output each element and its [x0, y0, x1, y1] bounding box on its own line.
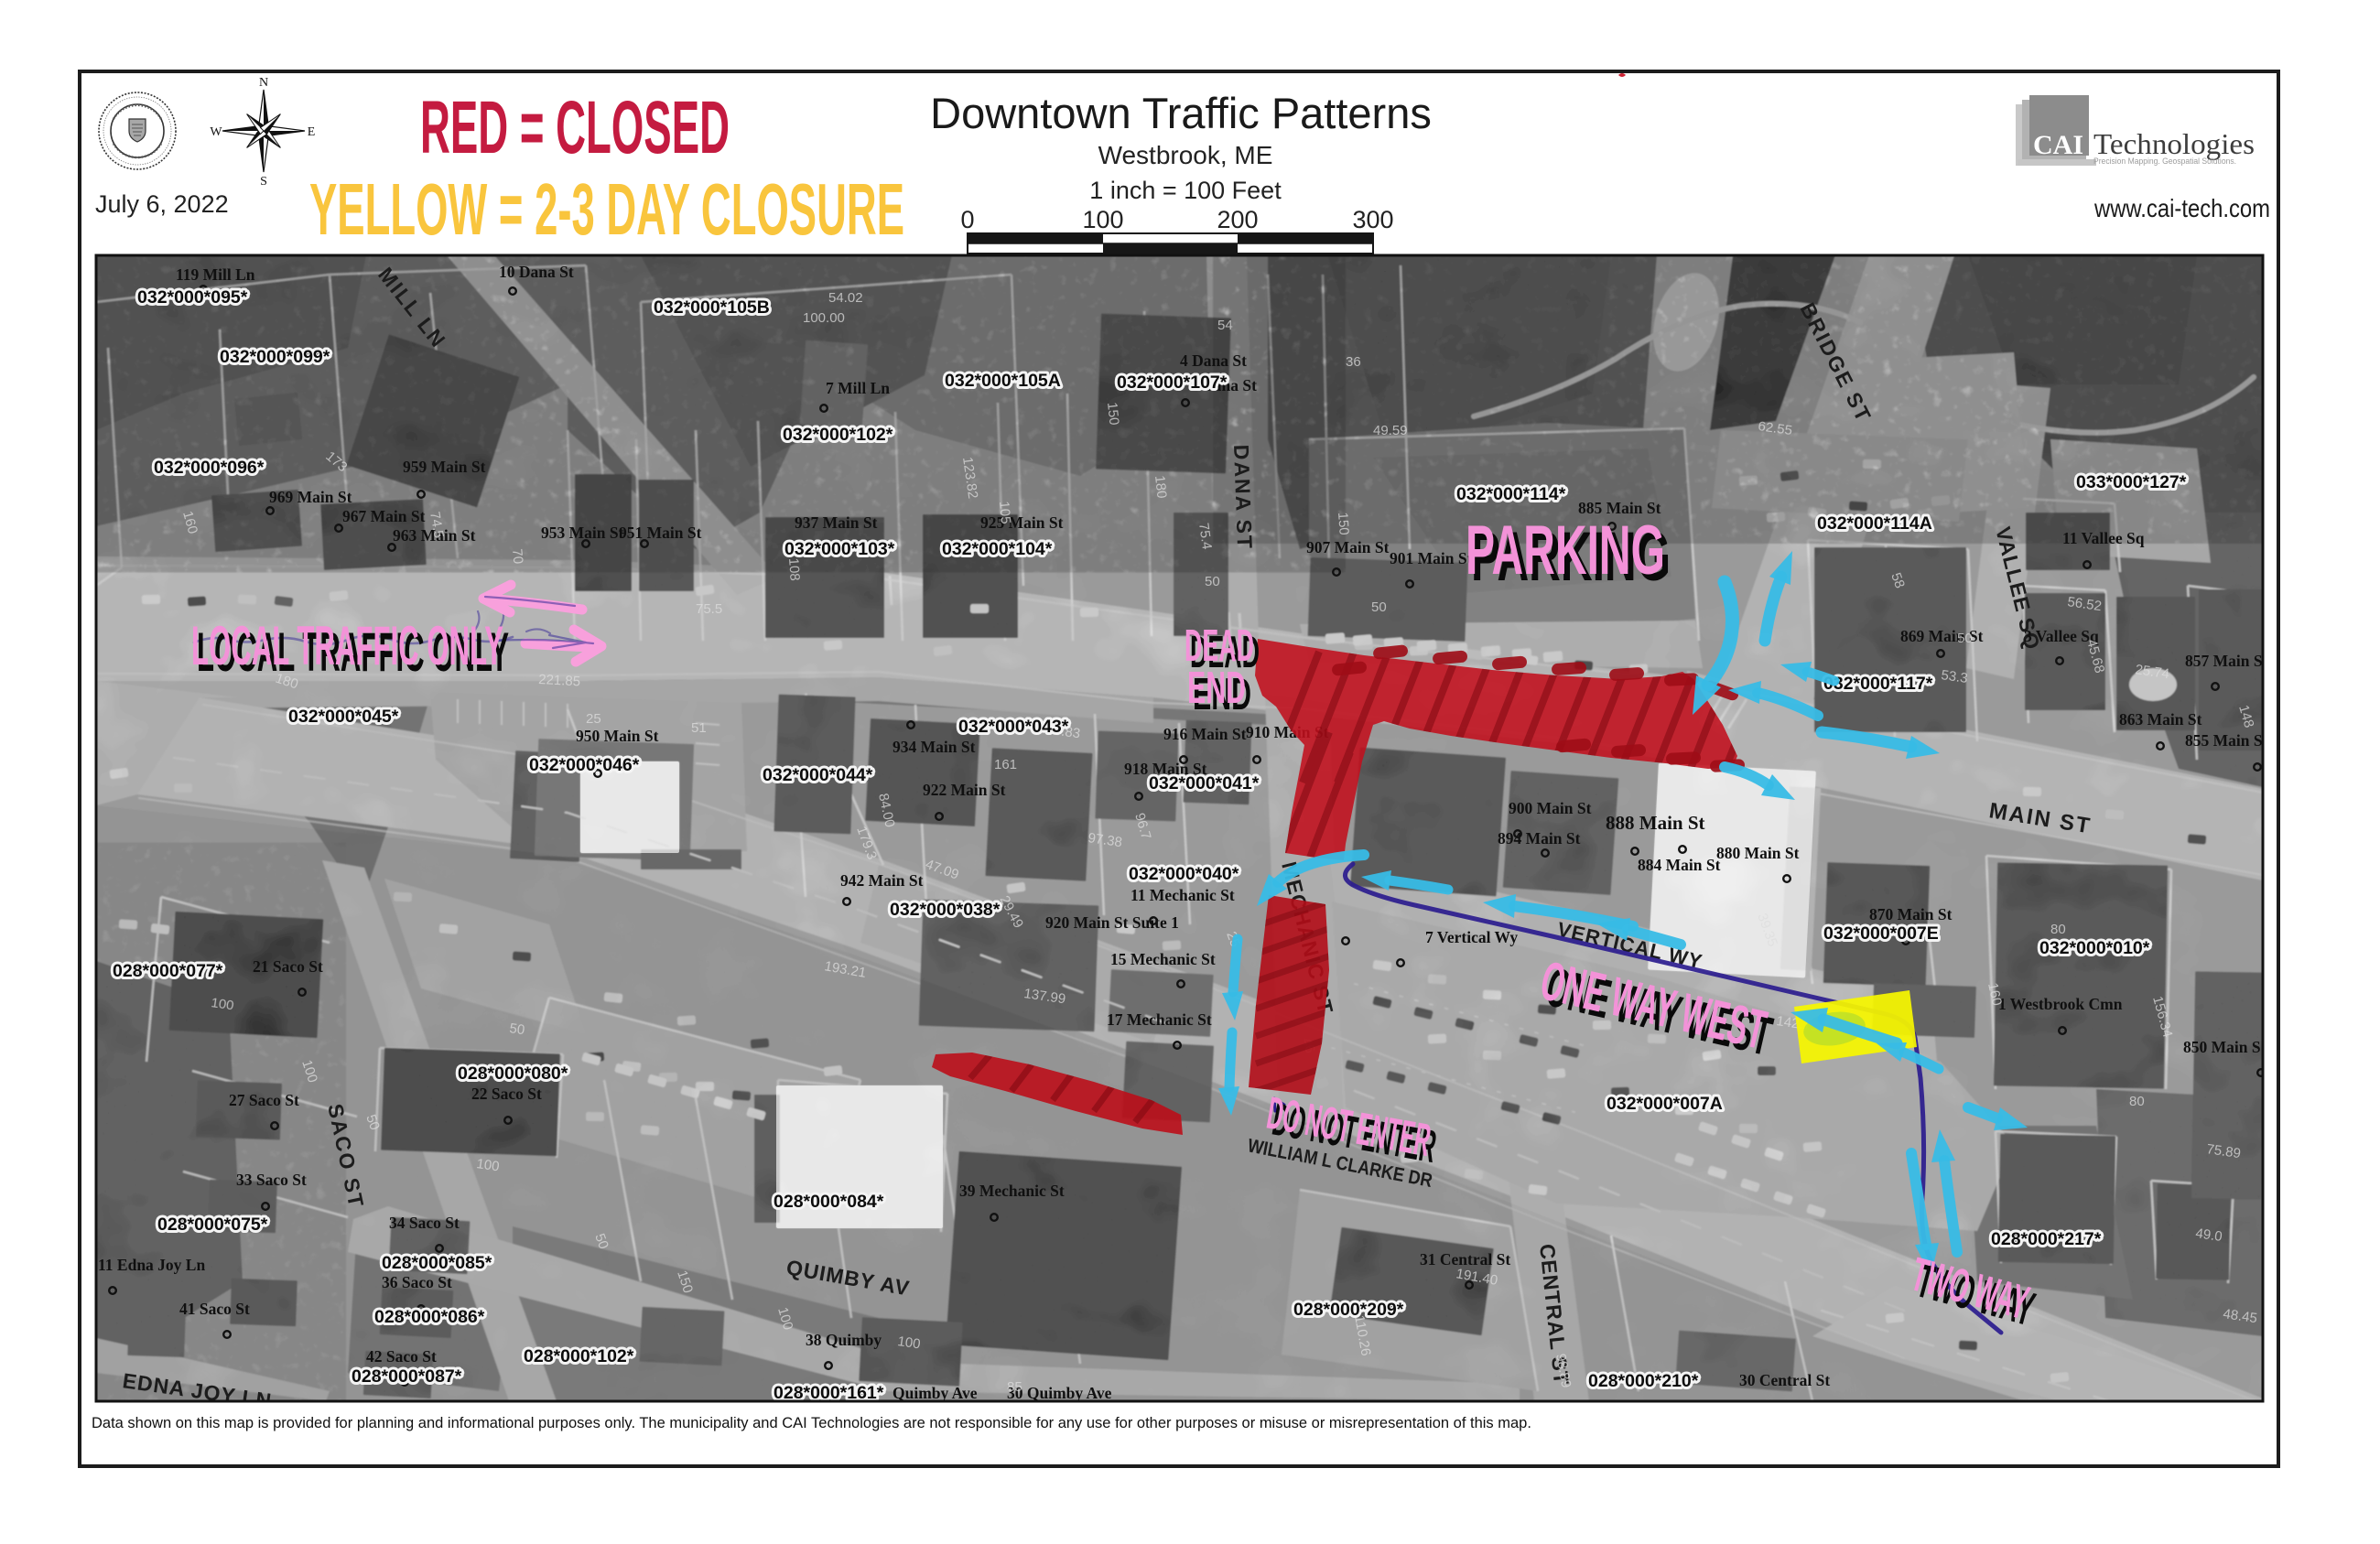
svg-text:4 Dana St: 4 Dana St — [1180, 351, 1247, 370]
svg-text:922 Main St: 922 Main St — [923, 781, 1006, 799]
svg-text:DANA ST: DANA ST — [1229, 444, 1257, 550]
svg-text:30 Central St: 30 Central St — [1739, 1371, 1830, 1389]
svg-text:80: 80 — [2050, 922, 2066, 937]
svg-text:100: 100 — [1082, 206, 1123, 233]
svg-text:27 Saco St: 27 Saco St — [229, 1091, 299, 1109]
svg-text:850 Main S: 850 Main S — [2183, 1038, 2261, 1056]
svg-text:032*000*038*: 032*000*038* — [890, 900, 1001, 920]
svg-text:CAI: CAI — [2033, 130, 2083, 160]
svg-text:032*000*114*: 032*000*114* — [1456, 484, 1566, 504]
svg-text:100.00: 100.00 — [803, 310, 845, 326]
svg-text:032*000*105A: 032*000*105A — [945, 371, 1061, 391]
svg-text:934 Main St: 934 Main St — [892, 738, 976, 756]
svg-text:028*000*102*: 028*000*102* — [524, 1346, 634, 1366]
svg-text:W: W — [210, 125, 222, 139]
svg-text:032*000*117*: 032*000*117* — [1823, 674, 1933, 694]
svg-text:51: 51 — [691, 720, 707, 736]
svg-text:916 Main St: 916 Main St — [1163, 725, 1247, 743]
svg-text:032*000*007E: 032*000*007E — [1823, 923, 1939, 944]
svg-text:863 Main St: 863 Main St — [2119, 710, 2202, 729]
svg-text:951 Main St: 951 Main St — [619, 524, 702, 542]
svg-text:161: 161 — [994, 757, 1017, 772]
svg-text:032*000*045*: 032*000*045* — [288, 707, 399, 727]
svg-text:30 Quimby Ave: 30 Quimby Ave — [1007, 1384, 1112, 1402]
svg-text:028*000*087*: 028*000*087* — [352, 1366, 462, 1387]
svg-text:032*000*010*: 032*000*010* — [2039, 938, 2150, 958]
svg-text:221.85: 221.85 — [538, 672, 581, 689]
svg-text:10 Dana St: 10 Dana St — [499, 263, 574, 281]
svg-text:42 Saco St: 42 Saco St — [366, 1347, 437, 1366]
svg-text:1 inch = 100 Feet: 1 inch = 100 Feet — [1089, 177, 1282, 204]
svg-text:888 Main St: 888 Main St — [1606, 812, 1705, 834]
svg-text:028*000*075*: 028*000*075* — [157, 1215, 268, 1235]
svg-text:028*000*084*: 028*000*084* — [773, 1192, 884, 1212]
svg-text:54.02: 54.02 — [828, 290, 863, 306]
svg-text:028*000*210*: 028*000*210* — [1588, 1371, 1699, 1391]
svg-text:75.5: 75.5 — [696, 601, 722, 617]
svg-text:70: 70 — [509, 548, 525, 565]
svg-text:032*000*040*: 032*000*040* — [1129, 864, 1239, 884]
svg-text:34 Saco St: 34 Saco St — [389, 1214, 460, 1232]
svg-text:907 Main St: 907 Main St — [1306, 538, 1390, 556]
svg-text:50: 50 — [1205, 574, 1220, 589]
svg-text:937 Main St: 937 Main St — [795, 513, 878, 532]
svg-text:925 Main St: 925 Main St — [980, 513, 1064, 532]
svg-text:11 Mechanic St: 11 Mechanic St — [1130, 886, 1235, 904]
svg-text:25: 25 — [586, 711, 601, 727]
svg-text:S: S — [260, 175, 267, 189]
svg-text:032*000*096*: 032*000*096* — [154, 458, 265, 478]
svg-text:Precision Mapping. Geospatial: Precision Mapping. Geospatial Solutions. — [2093, 157, 2236, 166]
svg-text:11 Vallee Sq: 11 Vallee Sq — [2062, 529, 2145, 547]
svg-text:80: 80 — [2129, 1094, 2145, 1109]
svg-text:www.cai-tech.com: www.cai-tech.com — [2093, 194, 2270, 222]
svg-text:49.59: 49.59 — [1373, 423, 1408, 438]
svg-text:032*000*044*: 032*000*044* — [763, 765, 873, 785]
svg-text:PARKING: PARKING — [1466, 512, 1665, 589]
svg-text:31 Central St: 31 Central St — [1420, 1250, 1510, 1269]
svg-text:028*000*217*: 028*000*217* — [1991, 1229, 2102, 1249]
svg-text:108: 108 — [785, 557, 803, 581]
svg-text:032*000*103*: 032*000*103* — [784, 539, 895, 559]
svg-text:36 Saco St: 36 Saco St — [382, 1273, 452, 1291]
svg-text:119 Mill Ln: 119 Mill Ln — [176, 265, 255, 284]
svg-text:LOCAL TRAFFIC ONLY: LOCAL TRAFFIC ONLY — [191, 615, 503, 676]
svg-text:85: 85 — [1007, 1379, 1022, 1395]
svg-text:880 Main St: 880 Main St — [1716, 844, 1800, 862]
svg-text:N: N — [259, 76, 268, 90]
svg-text:150: 150 — [1104, 402, 1122, 426]
svg-text:032*000*104*: 032*000*104* — [942, 539, 1053, 559]
svg-text:300: 300 — [1352, 206, 1393, 233]
svg-text:032*000*105B: 032*000*105B — [654, 297, 770, 318]
svg-text:Downtown Traffic Patterns: Downtown Traffic Patterns — [930, 89, 1432, 137]
svg-text:200: 200 — [1217, 206, 1258, 233]
svg-text:028*000*080*: 028*000*080* — [458, 1064, 568, 1084]
svg-text:920 Main St Suite 1: 920 Main St Suite 1 — [1045, 913, 1179, 932]
svg-text:870 Main St: 870 Main St — [1869, 905, 1953, 923]
svg-text:Technologies: Technologies — [2093, 127, 2255, 160]
svg-text:900 Main St: 900 Main St — [1509, 799, 1592, 817]
svg-text:Westbrook, ME: Westbrook, ME — [1098, 141, 1273, 169]
svg-text:855 Main S: 855 Main S — [2185, 731, 2263, 750]
svg-text:54: 54 — [1217, 318, 1233, 333]
svg-text:39 Mechanic St: 39 Mechanic St — [959, 1182, 1065, 1200]
svg-text:033*000*127*: 033*000*127* — [2076, 472, 2187, 492]
svg-text:33 Saco St: 33 Saco St — [236, 1171, 307, 1189]
svg-text:032*000*102*: 032*000*102* — [783, 425, 893, 445]
svg-text:50: 50 — [508, 1020, 525, 1038]
svg-text:38 Quimby: 38 Quimby — [806, 1331, 882, 1349]
svg-text:RED = CLOSED: RED = CLOSED — [420, 86, 730, 169]
svg-text:22 Saco St: 22 Saco St — [471, 1085, 542, 1103]
svg-text:0: 0 — [960, 206, 974, 233]
svg-text:Quimby Ave: Quimby Ave — [892, 1384, 978, 1402]
svg-text:901 Main St: 901 Main St — [1390, 549, 1473, 567]
svg-text:100: 100 — [210, 995, 234, 1013]
svg-text:032*000*043*: 032*000*043* — [958, 717, 1069, 737]
svg-text:50: 50 — [1371, 599, 1387, 615]
svg-text:884 Main St: 884 Main St — [1638, 856, 1721, 874]
svg-text:50: 50 — [1957, 631, 1973, 646]
svg-text:953 Main St: 953 Main St — [541, 524, 624, 542]
svg-text:028*000*085*: 028*000*085* — [382, 1253, 492, 1273]
svg-text:1 Westbrook Cmn: 1 Westbrook Cmn — [1998, 995, 2123, 1013]
svg-text:032*000*114A: 032*000*114A — [1817, 513, 1932, 534]
svg-text:028*000*077*: 028*000*077* — [113, 961, 223, 981]
svg-text:032*000*107*: 032*000*107* — [1117, 373, 1228, 393]
svg-text:032*000*046*: 032*000*046* — [529, 755, 640, 775]
svg-text:July 6, 2022: July 6, 2022 — [95, 190, 229, 218]
svg-text:Data shown on this map is prov: Data shown on this map is provided for p… — [92, 1415, 1531, 1431]
svg-text:959 Main St: 959 Main St — [403, 458, 486, 476]
svg-text:028*000*209*: 028*000*209* — [1293, 1300, 1404, 1320]
svg-text:7 Vertical Wy: 7 Vertical Wy — [1425, 928, 1518, 946]
svg-text:21 Saco St: 21 Saco St — [253, 957, 323, 976]
svg-text:105: 105 — [996, 501, 1013, 524]
svg-text:41 Saco St: 41 Saco St — [179, 1300, 250, 1318]
svg-text:032*000*095*: 032*000*095* — [137, 287, 248, 308]
svg-text:YELLOW = 2-3 DAY CLOSURE: YELLOW = 2-3 DAY CLOSURE — [309, 168, 904, 250]
svg-text:942 Main St: 942 Main St — [840, 871, 924, 890]
svg-text:950 Main St: 950 Main St — [576, 727, 659, 745]
svg-text:100: 100 — [475, 1156, 500, 1174]
svg-text:100: 100 — [896, 1333, 921, 1352]
svg-text:969 Main St: 969 Main St — [269, 488, 352, 506]
svg-text:857 Main S: 857 Main S — [2185, 652, 2263, 670]
svg-text:17 Mechanic St: 17 Mechanic St — [1107, 1010, 1212, 1029]
svg-text:11 Edna Joy Ln: 11 Edna Joy Ln — [98, 1256, 205, 1274]
svg-text:15 Mechanic St: 15 Mechanic St — [1110, 950, 1216, 968]
svg-text:028*000*086*: 028*000*086* — [374, 1307, 485, 1327]
svg-text:END: END — [1187, 664, 1246, 713]
svg-text:36: 36 — [1346, 354, 1361, 370]
svg-text:E: E — [308, 125, 316, 139]
svg-text:032*000*007A: 032*000*007A — [1606, 1094, 1723, 1114]
svg-text:032*000*099*: 032*000*099* — [220, 347, 330, 367]
svg-text:894 Main St: 894 Main St — [1498, 829, 1581, 848]
svg-text:7 Mill Ln: 7 Mill Ln — [826, 379, 890, 397]
svg-text:150: 150 — [1335, 512, 1352, 535]
svg-text:967 Main St: 967 Main St — [342, 507, 426, 525]
svg-text:180: 180 — [1152, 475, 1170, 500]
svg-text:032*000*041*: 032*000*041* — [1149, 773, 1260, 794]
